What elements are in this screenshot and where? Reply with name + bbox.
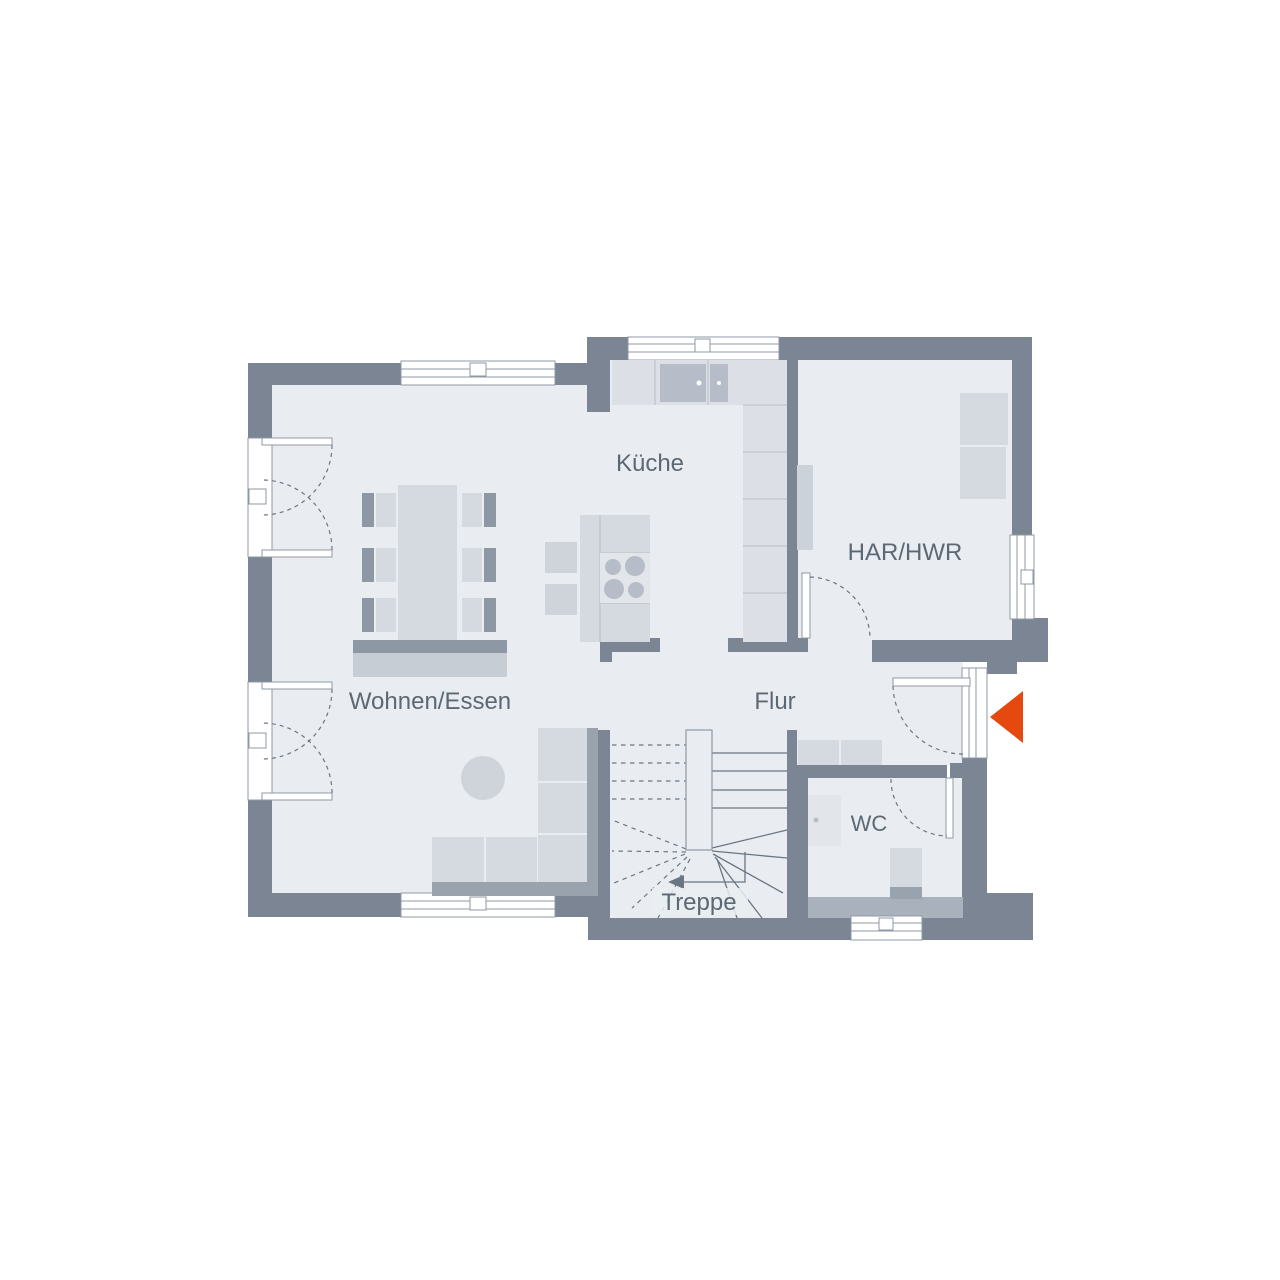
door-handle-icon (249, 733, 266, 748)
cooktop-burner-icon (605, 559, 621, 575)
label-kitchen: Küche (616, 450, 684, 477)
faucet-icon (717, 381, 721, 385)
cooktop-burner-icon (628, 582, 644, 598)
cooktop-burner-icon (625, 556, 645, 576)
chair-back (362, 548, 374, 582)
sofa-corner-cushion (538, 835, 587, 882)
chair-seat (462, 493, 482, 527)
label-utility-room: HAR/HWR (848, 539, 963, 566)
window-handle-icon (1021, 570, 1033, 584)
window-handle-icon (470, 363, 486, 376)
bar-stool (545, 542, 577, 573)
label-wc: WC (851, 811, 888, 836)
window-handle-icon (879, 918, 893, 930)
bench-cushion (798, 740, 839, 765)
wall-entry-stub-top (987, 660, 1017, 674)
sofa-cushion (486, 837, 537, 882)
coffee-table (461, 756, 505, 800)
door-leaf (262, 682, 332, 689)
chair-seat (376, 598, 396, 632)
wall-wc-top (787, 765, 947, 778)
window-living-top (401, 361, 555, 385)
window-living-bottom (401, 893, 555, 917)
floor-plan-page: Küche HAR/HWR Wohnen/Essen Flur WC Trepp… (0, 0, 1280, 1280)
chair-back (362, 598, 374, 632)
wall-wc-left (787, 765, 808, 918)
cooktop-burner-icon (604, 579, 624, 599)
wall-kitchen-divider-stub (600, 650, 612, 662)
faucet-icon (697, 381, 702, 386)
chair-back (362, 493, 374, 527)
chair-back (484, 598, 496, 632)
floor-hallway-strip (953, 765, 963, 897)
wall-utility-bottom (872, 640, 1032, 662)
sideboard-top (353, 640, 507, 653)
label-stairs: Treppe (661, 889, 736, 916)
door-leaf (262, 550, 332, 557)
door-leaf (262, 438, 332, 445)
window-kitchen-top (628, 337, 779, 360)
window-utility-right (1010, 535, 1034, 619)
door-leaf (893, 678, 970, 686)
sideboard (353, 653, 507, 677)
sofa-backrest (432, 882, 598, 896)
chair-seat (462, 548, 482, 582)
wall-wc-door-stub (950, 763, 985, 778)
label-hallway: Flur (754, 688, 795, 715)
window-handle-icon (695, 339, 710, 352)
sofa-cushion (432, 837, 484, 882)
faucet-icon (814, 818, 819, 823)
stair-newel (686, 730, 712, 850)
bench-cushion (841, 740, 882, 765)
sofa-cushion (538, 783, 587, 833)
utility-shelf (797, 465, 813, 550)
sofa-cushion (538, 728, 587, 781)
wall-wc-inner-band (800, 897, 963, 918)
door-leaf (802, 573, 810, 638)
dryer (960, 447, 1006, 499)
chair-seat (376, 548, 396, 582)
floor-plan-drawing: Küche HAR/HWR Wohnen/Essen Flur WC Trepp… (0, 0, 1280, 1280)
washing-machine (960, 393, 1008, 445)
dining-table (398, 485, 457, 640)
sofa-backrest (587, 728, 598, 896)
kitchen-counter-right (743, 360, 787, 642)
window-handle-icon (470, 897, 486, 910)
wc-sink (808, 795, 841, 846)
door-handle-icon (249, 489, 266, 504)
window-wc-bottom (851, 916, 922, 940)
wall-kitchen-utility-divider (786, 360, 798, 640)
label-living-dining: Wohnen/Essen (349, 688, 511, 715)
door-leaf (262, 793, 332, 800)
toilet-cistern (890, 887, 922, 899)
wall-corner-block (962, 893, 1033, 940)
chair-back (484, 493, 496, 527)
toilet (890, 848, 922, 887)
chair-seat (376, 493, 396, 527)
chair-back (484, 548, 496, 582)
door-leaf (946, 778, 953, 838)
chair-seat (462, 598, 482, 632)
bar-stool (545, 584, 577, 615)
